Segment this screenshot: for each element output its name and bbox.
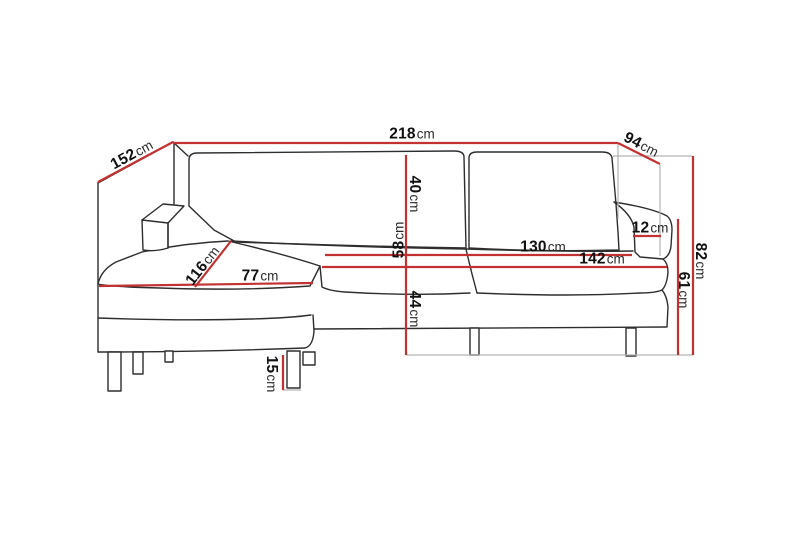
base-right-edge	[662, 290, 668, 327]
backrest-right-cushion	[469, 152, 619, 251]
leg-front-left	[108, 352, 121, 391]
right-seat-front-edge	[477, 290, 662, 295]
leg-center-support	[165, 351, 173, 362]
backrest-left-cushion	[189, 151, 466, 248]
left-seat-front-edge	[320, 266, 470, 294]
frame-corner-bevel	[173, 142, 188, 156]
dim-line-94	[618, 143, 660, 164]
diagram-drawing	[0, 0, 800, 533]
seat-right-edge	[662, 259, 668, 290]
base-bottom-edge	[314, 327, 666, 329]
leg-front-right	[287, 351, 300, 388]
leg-mid	[470, 328, 479, 355]
leg-corner-foot	[303, 352, 315, 365]
chaise-base-bottom	[98, 315, 314, 352]
sofa-dimension-diagram: 152cm 218cm 94cm 82cm 61cm 12cm 40cm 58c…	[0, 0, 800, 533]
chaise-front-bottom-edge	[98, 315, 311, 320]
chaise-seat-surface	[98, 241, 320, 289]
leg-right	[626, 328, 636, 356]
left-armrest	[142, 204, 184, 251]
dim-line-152	[98, 142, 173, 182]
leg-chaise-rear	[133, 352, 143, 374]
